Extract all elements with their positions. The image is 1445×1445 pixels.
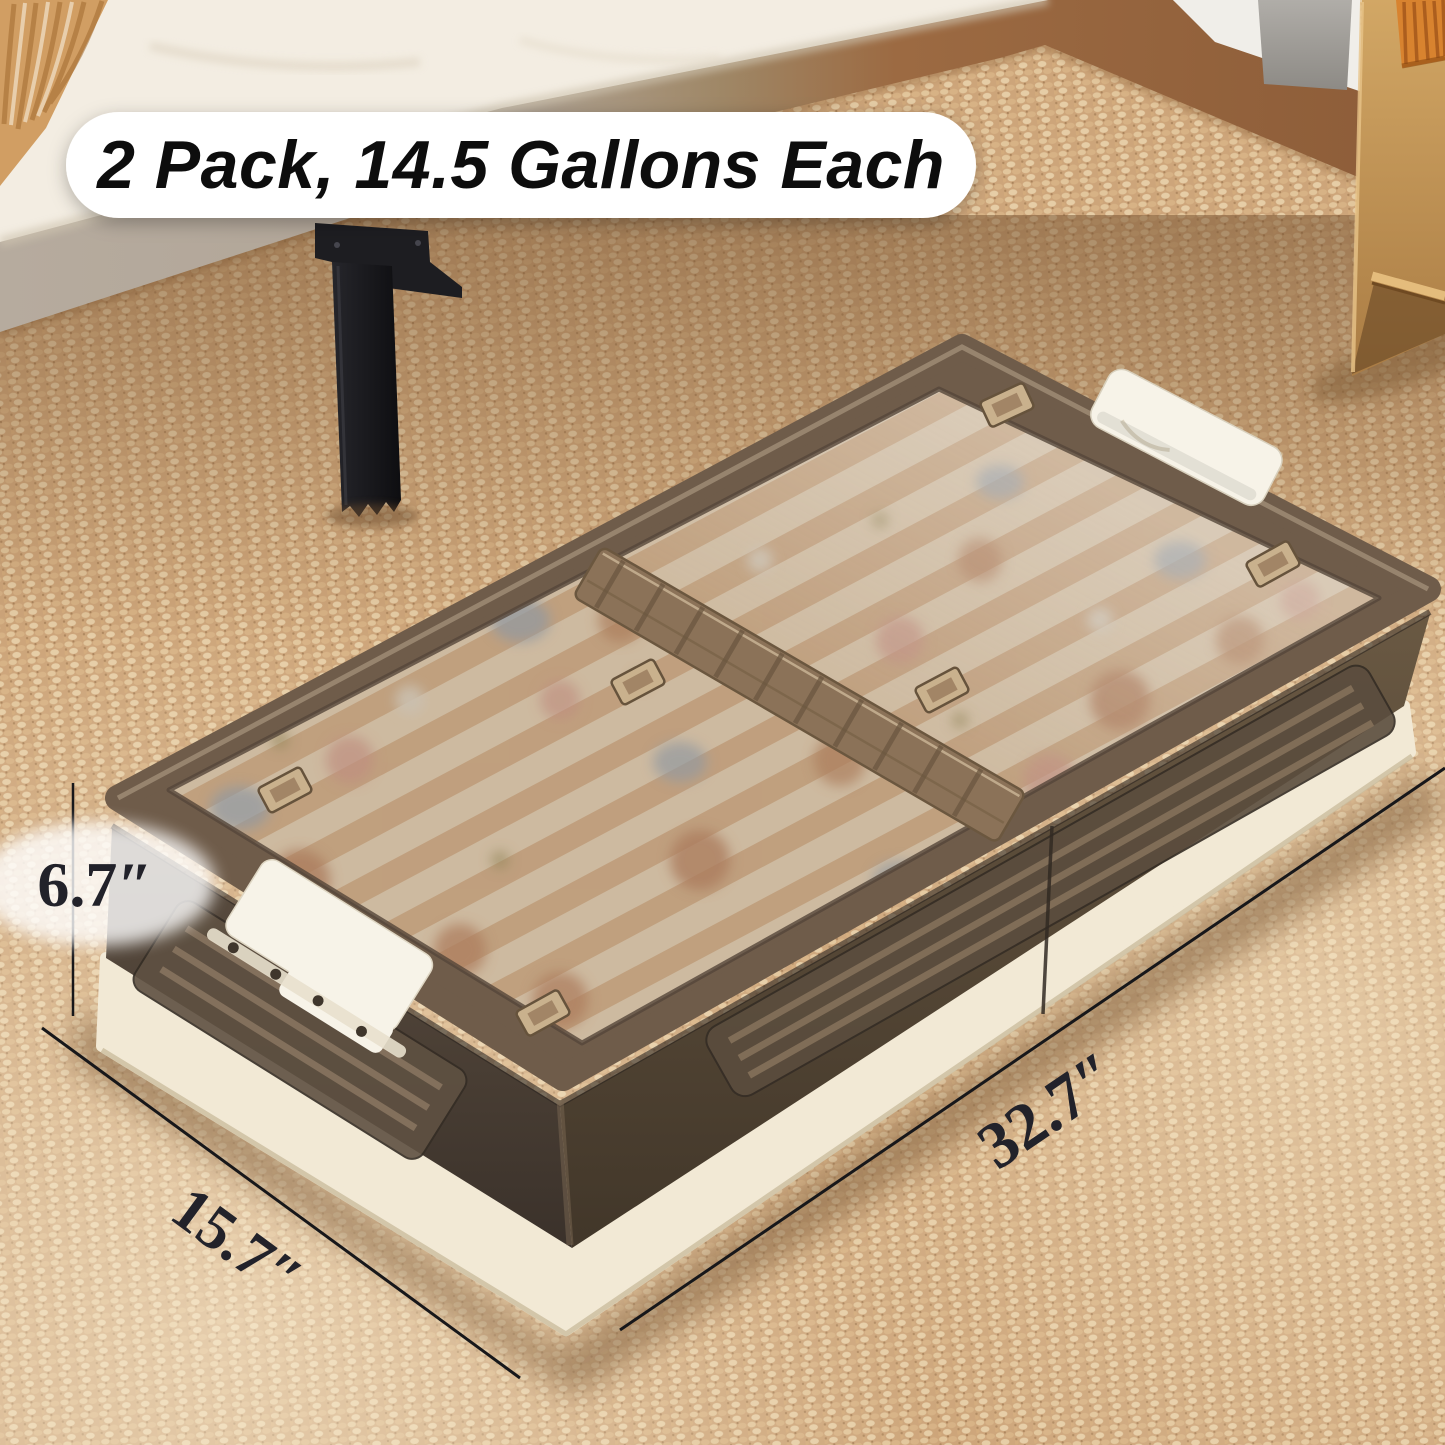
banner-text: 2 Pack, 14.5 Gallons Each [95,127,945,203]
banner: 2 Pack, 14.5 Gallons Each [66,112,976,218]
gray-furniture-leg [1258,0,1352,90]
height-dimension-label: 6.7″ [37,849,152,920]
product-screenshot-root: 6.7″ 15.7″ 32.7″ 2 Pack, 14.5 Gallons Ea… [0,0,1445,1445]
scene-canvas: 6.7″ 15.7″ 32.7″ 2 Pack, 14.5 Gallons Ea… [0,0,1445,1445]
